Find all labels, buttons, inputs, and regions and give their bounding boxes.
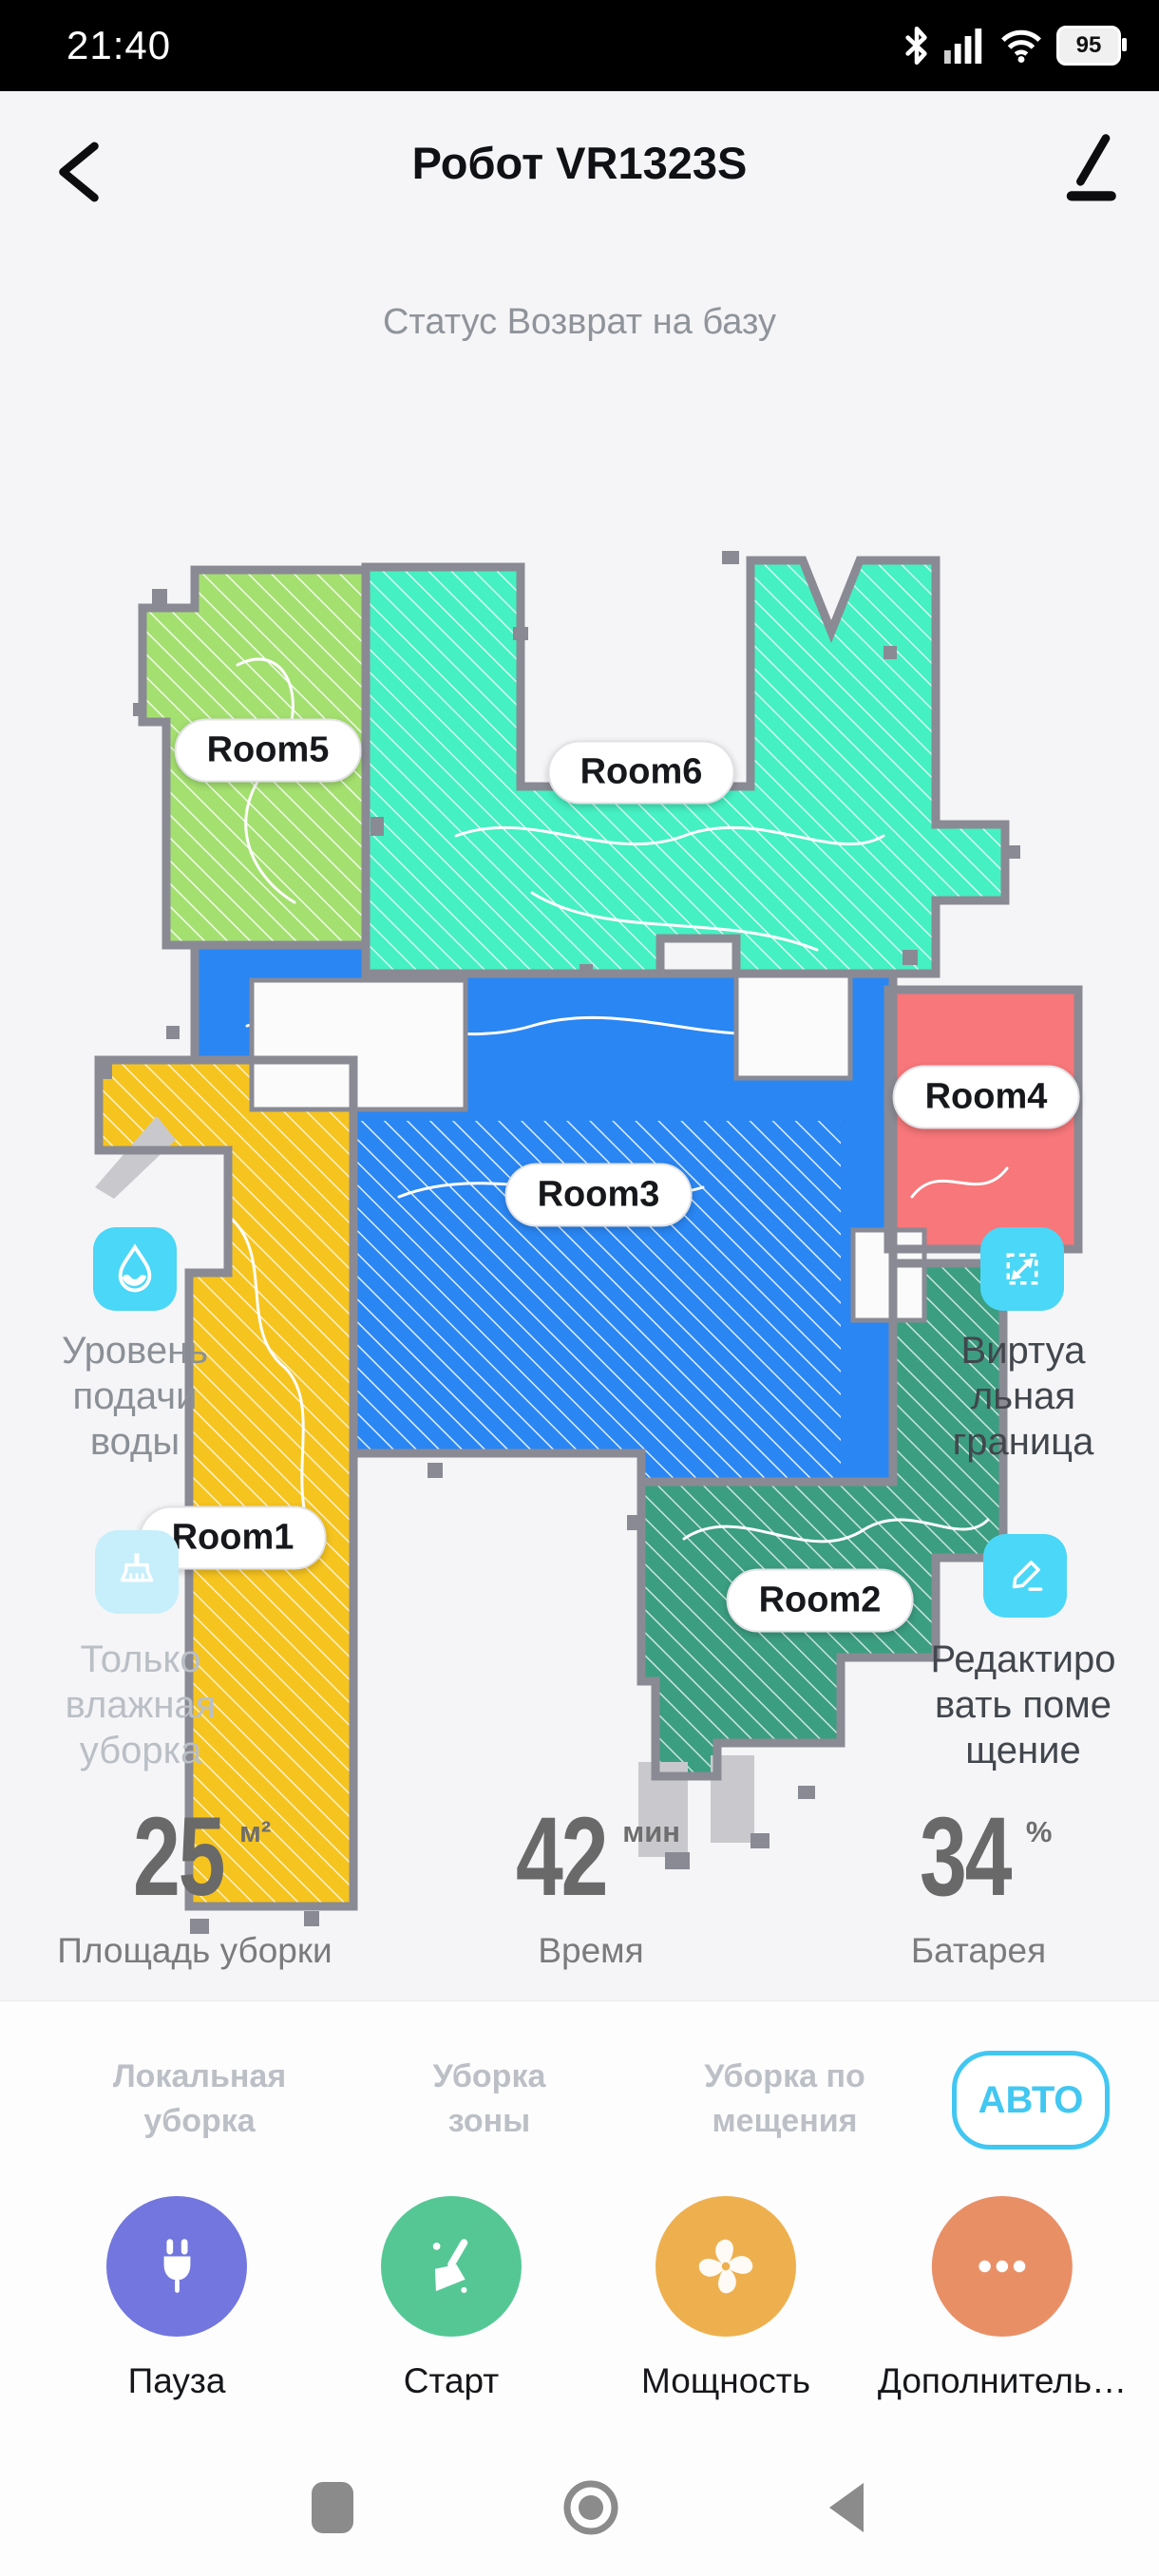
stat-time-label: Время <box>391 1931 790 1971</box>
recents-square-icon[interactable] <box>311 2481 354 2534</box>
plug-icon <box>131 2221 222 2312</box>
edit-room-label: Редактиро вать поме щение <box>931 1637 1116 1773</box>
room-label-room6[interactable]: Room6 <box>548 741 735 805</box>
robot-vacuum-app-screen: 21:40 95 <box>0 0 1159 2576</box>
tab-zone-clean[interactable]: Уборка зоны <box>433 2055 546 2144</box>
edit-title-pencil-icon[interactable] <box>1056 131 1119 203</box>
battery-indicator: 95 <box>1056 26 1121 66</box>
wet-clean-only-button[interactable] <box>95 1530 179 1614</box>
stat-time-value: 42 <box>516 1809 606 1904</box>
stat-area-unit: м² <box>239 1815 271 1849</box>
stat-time-unit: мин <box>622 1815 680 1849</box>
tab-local-clean[interactable]: Локальная уборка <box>113 2055 286 2144</box>
wifi-icon <box>999 27 1043 65</box>
pause-label: Пауза <box>106 2361 247 2401</box>
stat-area-value: 25 <box>133 1809 223 1904</box>
status-bar-icons: 95 <box>902 26 1121 66</box>
more-button[interactable]: Дополнитель… <box>878 2196 1127 2401</box>
virtual-boundary-label: Виртуа льная граница <box>953 1328 1094 1465</box>
stat-battery: 34 % Батарея <box>779 1809 1159 1971</box>
room-label-room4[interactable]: Room4 <box>893 1066 1080 1129</box>
water-level-label: Уровень подачи воды <box>62 1328 208 1465</box>
edit-room-icon <box>995 1545 1055 1606</box>
stat-time: 42 мин Время <box>391 1809 790 1971</box>
clock: 21:40 <box>66 23 171 68</box>
status-bar: 21:40 95 <box>0 0 1159 91</box>
stat-area-label: Площадь уборки <box>0 1931 394 1971</box>
battery-nub <box>1122 38 1127 51</box>
more-dots-icon <box>957 2221 1048 2312</box>
pause-button[interactable]: Пауза <box>106 2196 247 2401</box>
bluetooth-icon <box>902 26 931 66</box>
room-label-room2[interactable]: Room2 <box>727 1569 914 1633</box>
tab-auto-active[interactable]: АВТО <box>952 2051 1110 2150</box>
power-button[interactable]: Мощность <box>641 2196 810 2401</box>
room-label-room3[interactable]: Room3 <box>505 1164 693 1227</box>
header: Робот VR1323S <box>0 91 1159 253</box>
robot-status-text: Статус Возврат на базу <box>0 302 1159 343</box>
page-title: Робот VR1323S <box>0 137 1159 189</box>
stat-battery-label: Батарея <box>779 1931 1159 1971</box>
water-level-button[interactable] <box>93 1227 177 1311</box>
start-label: Старт <box>381 2361 522 2401</box>
wet-clean-only-label: Только влажная уборка <box>66 1637 217 1773</box>
back-triangle-icon[interactable] <box>826 2481 867 2534</box>
tab-room-clean[interactable]: Уборка по мещения <box>704 2055 865 2144</box>
stat-battery-value: 34 <box>920 1809 1010 1904</box>
virtual-boundary-icon <box>992 1239 1053 1299</box>
start-button[interactable]: Старт <box>381 2196 522 2401</box>
power-label: Мощность <box>641 2361 810 2401</box>
room-label-room5[interactable]: Room5 <box>175 719 362 783</box>
water-drop-icon <box>104 1239 165 1299</box>
start-broom-icon <box>406 2221 497 2312</box>
stat-battery-unit: % <box>1026 1815 1053 1849</box>
home-circle-icon[interactable] <box>562 2479 619 2536</box>
android-nav-bar <box>0 2451 1159 2576</box>
fan-icon <box>680 2221 771 2312</box>
virtual-boundary-button[interactable] <box>980 1227 1064 1311</box>
cell-signal-icon <box>944 26 986 66</box>
battery-percent: 95 <box>1076 32 1102 59</box>
more-label: Дополнитель… <box>878 2361 1127 2401</box>
stat-clean-area: 25 м² Площадь уборки <box>0 1809 394 1971</box>
edit-room-button[interactable] <box>983 1534 1067 1618</box>
wet-clean-broom-icon <box>107 1543 166 1601</box>
